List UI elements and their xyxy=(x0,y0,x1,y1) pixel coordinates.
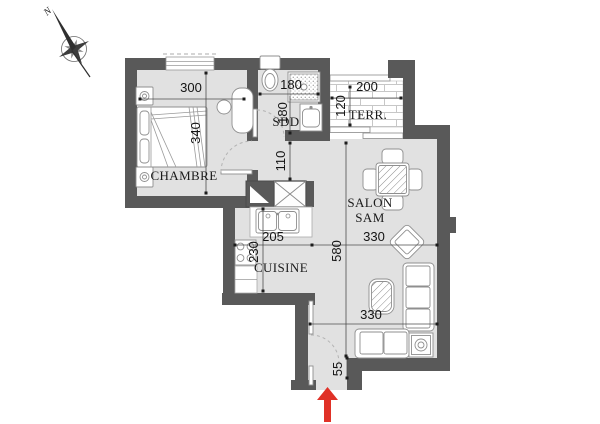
chambre-window xyxy=(166,57,214,70)
washbasin xyxy=(300,104,322,131)
dim-sdd-width: 180 xyxy=(280,77,302,92)
technical-shafts xyxy=(246,181,306,207)
dim-salon-width-top: 330 xyxy=(363,229,385,244)
wardrobe xyxy=(232,88,253,133)
terrace-label: TERR. xyxy=(349,107,387,122)
entry-door-leaf xyxy=(309,301,313,334)
chair xyxy=(382,149,403,164)
compass-rose-icon: N xyxy=(41,5,90,77)
dim-hall-height: 110 xyxy=(273,151,288,172)
chambre-door-leaf xyxy=(221,170,252,174)
cuisine-label: CUISINE xyxy=(254,260,308,275)
dim-entry-depth: 55 xyxy=(330,362,345,376)
dim-terrace-width: 200 xyxy=(356,79,378,94)
side-table xyxy=(409,333,433,357)
sdd-label: SDD xyxy=(272,114,299,129)
dim-salon-width-bottom: 330 xyxy=(360,307,382,322)
dim-terrace-height: 120 xyxy=(333,95,348,117)
dim-cuisine-width: 205 xyxy=(262,229,284,244)
pillow xyxy=(140,111,149,135)
dim-chambre-height: 340 xyxy=(188,122,203,144)
compass-needle-north xyxy=(52,9,76,51)
salon-label: SALON xyxy=(347,195,393,210)
compass-north-label: N xyxy=(41,5,55,19)
pillow xyxy=(140,139,149,163)
sdd-door-leaf xyxy=(253,109,257,137)
sdd-doorway-floor xyxy=(258,130,285,141)
chambre-label: CHAMBRE xyxy=(150,168,217,183)
dim-chambre-width: 300 xyxy=(180,80,202,95)
sliding-door-panel xyxy=(330,127,370,133)
floor-plan-page: 300 340 180 180 200 120 110 205 330 230 … xyxy=(0,0,600,424)
floor-plan-svg: 300 340 180 180 200 120 110 205 330 230 … xyxy=(0,0,600,424)
entry-door-jamb xyxy=(309,366,313,385)
sliding-door-panel xyxy=(363,133,403,139)
compass-needle-south xyxy=(72,51,90,77)
dim-salon-height: 580 xyxy=(329,240,344,262)
stool xyxy=(217,100,231,114)
entrance-arrow-icon xyxy=(317,387,338,422)
sam-label: SAM xyxy=(355,210,384,225)
